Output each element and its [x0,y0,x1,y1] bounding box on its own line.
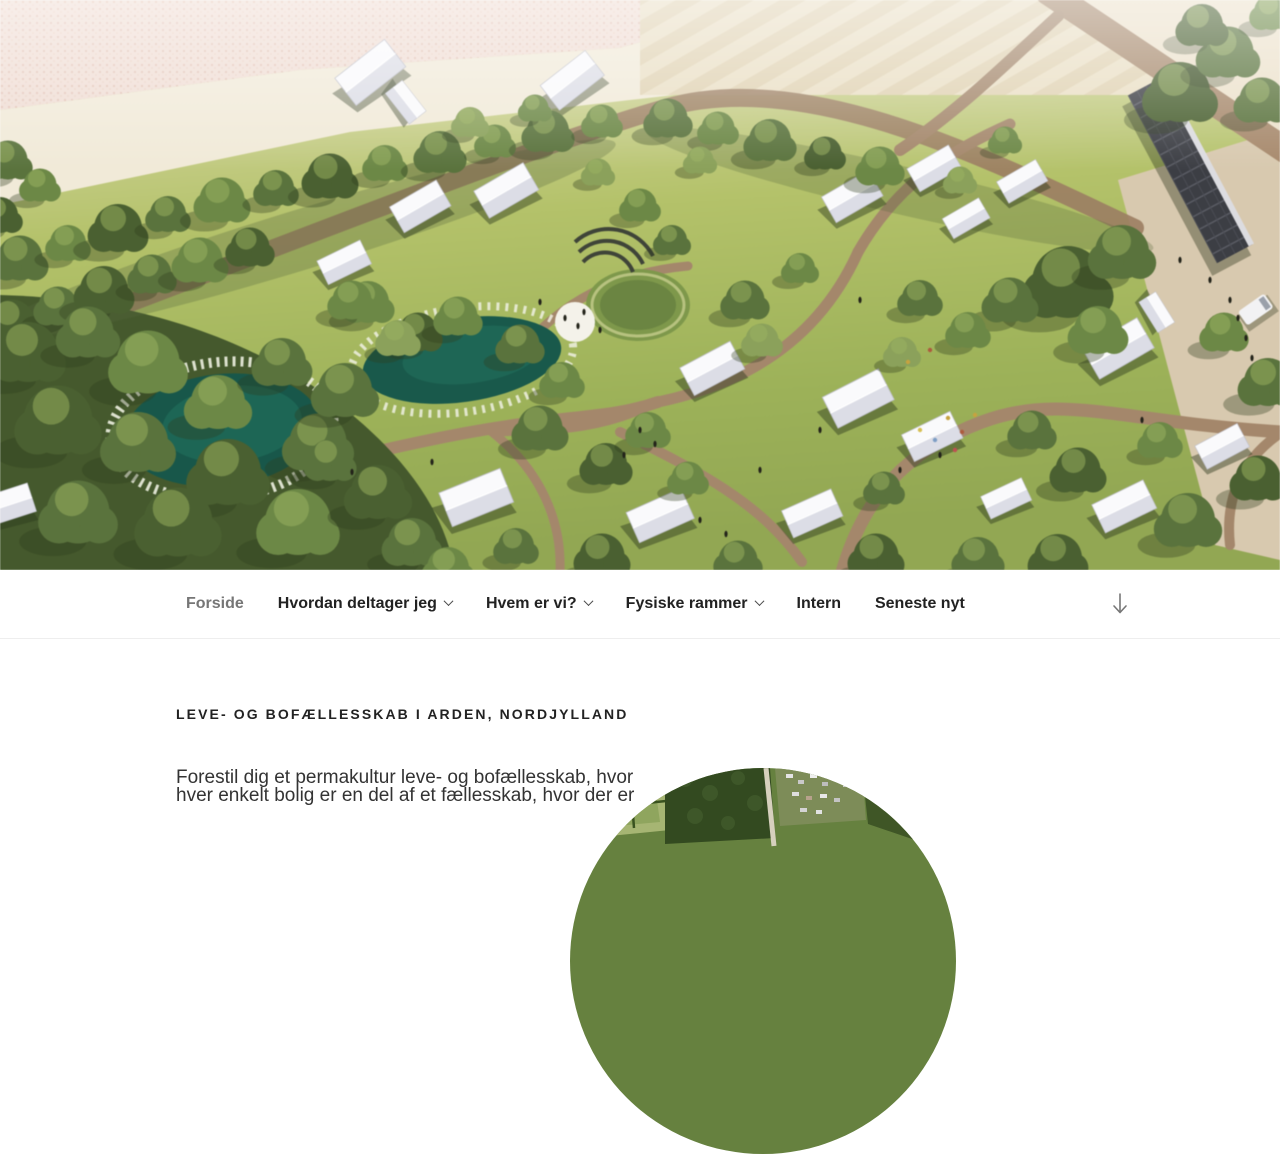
hero-header [0,0,1280,570]
nav-item-forside[interactable]: Forside [169,570,261,638]
aerial-map-image [570,768,956,1154]
nav-item-intern[interactable]: Intern [780,570,858,638]
nav-item-label: Seneste nyt [875,595,965,613]
down-arrow-icon [1110,592,1130,616]
nav-item-hvem-er-vi[interactable]: Hvem er vi? [469,570,609,638]
scroll-down-button[interactable] [1110,592,1130,616]
chevron-down-icon[interactable] [444,596,454,606]
nav-item-label: Forside [186,595,244,613]
nav-item-label: Intern [797,595,841,613]
intro-line-2: hver enkelt bolig er en del af et fælles… [176,787,646,805]
main-content: LEVE- OG BOFÆLLESSKAB I ARDEN, NORDJYLLA… [0,639,1280,805]
hero-image [0,0,1280,570]
main-nav: Forside Hvordan deltager jeg Hvem er vi?… [0,570,1280,639]
nav-item-label: Hvem er vi? [486,595,577,613]
nav-item-seneste-nyt[interactable]: Seneste nyt [858,570,982,638]
chevron-down-icon[interactable] [583,596,593,606]
nav-item-label: Hvordan deltager jeg [278,595,437,613]
nav-item-label: Fysiske rammer [626,595,748,613]
page-title: LEVE- OG BOFÆLLESSKAB I ARDEN, NORDJYLLA… [176,707,1104,721]
nav-item-hvordan-deltager-jeg[interactable]: Hvordan deltager jeg [261,570,469,638]
nav-item-fysiske-rammer[interactable]: Fysiske rammer [609,570,780,638]
chevron-down-icon[interactable] [754,596,764,606]
nav-inner: Forside Hvordan deltager jeg Hvem er vi?… [140,570,1140,638]
front-page-section: LEVE- OG BOFÆLLESSKAB I ARDEN, NORDJYLLA… [140,639,1140,805]
